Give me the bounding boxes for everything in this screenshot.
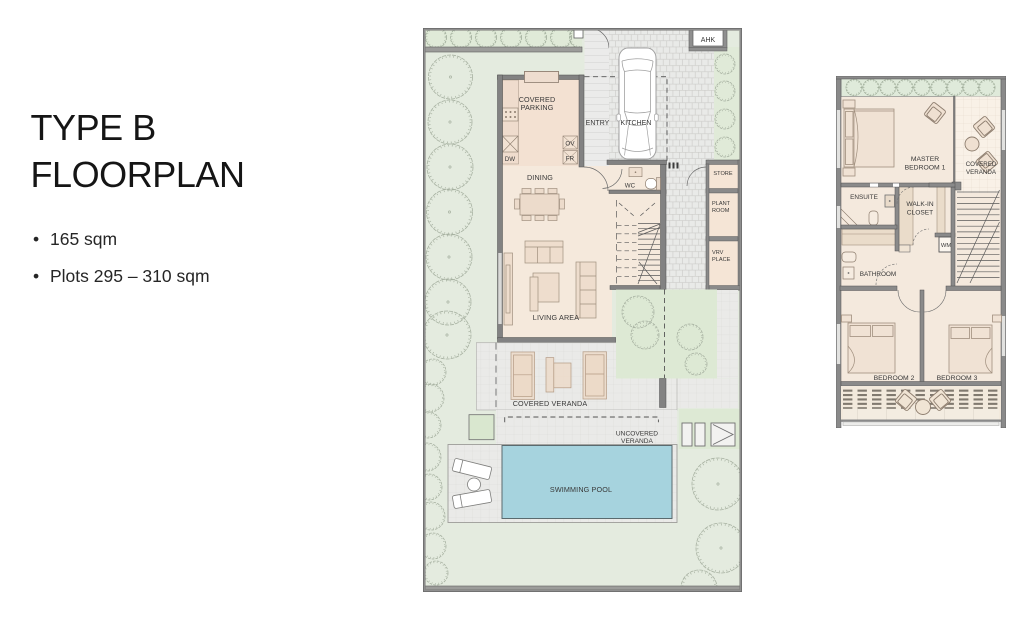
svg-text:AHK: AHK [701, 37, 716, 44]
svg-text:DW: DW [505, 156, 516, 163]
svg-text:UNCOVERED: UNCOVERED [616, 431, 658, 438]
svg-text:ROOM: ROOM [712, 208, 730, 214]
svg-text:OV: OV [565, 141, 575, 148]
svg-text:BEDROOM 2: BEDROOM 2 [874, 375, 915, 382]
svg-text:FR: FR [566, 156, 575, 163]
svg-text:COVERED: COVERED [966, 161, 997, 168]
svg-text:WM: WM [941, 243, 951, 249]
svg-text:VERANDA: VERANDA [966, 169, 997, 176]
svg-text:CLOSET: CLOSET [907, 210, 933, 217]
svg-text:LIVING AREA: LIVING AREA [533, 313, 579, 322]
svg-text:PLANT: PLANT [712, 201, 731, 207]
svg-text:PLACE: PLACE [712, 257, 731, 263]
svg-text:WC: WC [625, 183, 636, 190]
svg-text:VERANDA: VERANDA [621, 438, 653, 445]
svg-text:BATHROOM: BATHROOM [860, 271, 896, 278]
svg-text:MASTER: MASTER [911, 156, 939, 163]
svg-text:BEDROOM 1: BEDROOM 1 [905, 165, 946, 172]
svg-text:SWIMMING POOL: SWIMMING POOL [550, 485, 612, 494]
svg-text:KITCHEN: KITCHEN [621, 120, 652, 127]
svg-text:ENSUITE: ENSUITE [850, 194, 878, 201]
svg-text:BEDROOM 3: BEDROOM 3 [937, 375, 978, 382]
svg-text:WALK-IN: WALK-IN [906, 201, 933, 208]
svg-text:COVERED VERANDA: COVERED VERANDA [513, 399, 588, 408]
svg-text:DINING: DINING [527, 173, 553, 182]
svg-text:VRV: VRV [712, 250, 724, 256]
svg-text:STORE: STORE [713, 171, 732, 177]
svg-text:PARKING: PARKING [521, 103, 554, 112]
svg-text:ENTRY: ENTRY [586, 120, 610, 127]
